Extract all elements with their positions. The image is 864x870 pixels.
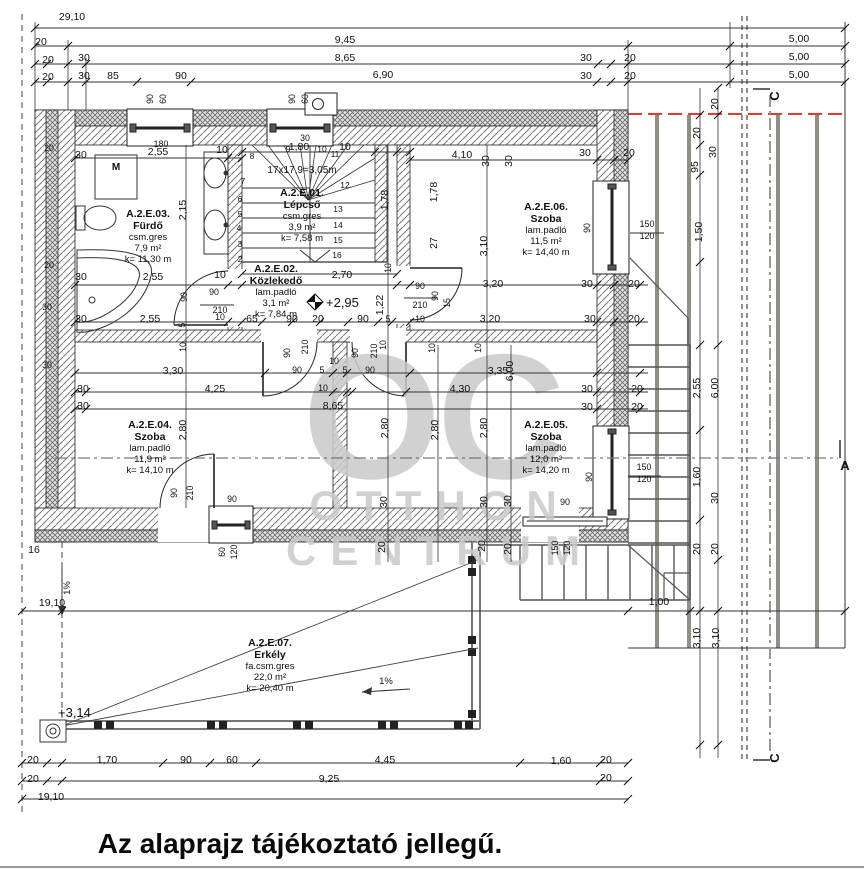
dim-label: 27 (428, 237, 440, 249)
dim-label: 90 (287, 94, 297, 104)
step-label: 15 (333, 235, 343, 245)
dim-label: 8,65 (323, 400, 344, 412)
step-label: 7 (241, 176, 246, 186)
dim-label: 5 (177, 322, 187, 327)
dim-label: 20 (623, 147, 635, 159)
step-label: 5 (238, 209, 243, 219)
level-label: +2,95 (326, 295, 359, 310)
dim-label: 30 (503, 155, 515, 167)
dim-label: 20 (44, 260, 54, 270)
dim-label: 30 (579, 147, 591, 159)
railing-post (468, 710, 476, 718)
railing-post (219, 721, 227, 729)
dim-label: 1,60 (691, 467, 703, 488)
dim-label: 30 (77, 383, 89, 395)
dim-label: 30 (580, 70, 592, 82)
dim-label: 120 (229, 545, 239, 560)
dim-label: 90 (582, 223, 592, 233)
dim-label: 90 (209, 287, 219, 297)
section-label: C (767, 753, 782, 763)
dim-label: 20 (600, 754, 612, 766)
dim-label: 30 (502, 495, 514, 507)
dim-label: 20 (312, 313, 324, 325)
dim-label: 10 (383, 263, 393, 273)
dim-label: 5 (386, 314, 391, 324)
dim-label: 3,30 (163, 365, 184, 377)
dim-label: 10 (318, 383, 328, 393)
dim-label: 5 (343, 365, 348, 375)
dim-label: 4,30 (450, 383, 471, 395)
step-label: 13 (333, 204, 343, 214)
railing-post (207, 721, 215, 729)
dim-label: 10 (473, 343, 483, 353)
railing-post (378, 721, 386, 729)
dim-label: 8,65 (335, 52, 356, 64)
section-label: A (840, 458, 850, 473)
railing-post (106, 721, 114, 729)
dim-label: 30 (581, 401, 593, 413)
dim-label: 90 (415, 281, 425, 291)
dim-label: 90 (179, 292, 189, 302)
dim-label: 10 (339, 141, 351, 153)
dim-label: 30 (75, 271, 87, 283)
dim-label: 3,20 (480, 313, 501, 325)
watermark-otthon: OTTHON (309, 482, 570, 529)
watermark-centrum: CENTRUM (286, 527, 594, 574)
dim-label: 30 (581, 278, 593, 290)
dim-label: 2,80 (177, 420, 189, 441)
wall-left-insulation (46, 110, 58, 542)
railing-post (468, 636, 476, 644)
step-label: 3 (238, 239, 243, 249)
dim-label: 2,80 (379, 418, 391, 439)
dim-label: 2,55 (691, 378, 703, 399)
dim-label: 20 (624, 70, 636, 82)
fixture-label: M (112, 162, 120, 173)
slope-arrow (362, 687, 372, 695)
dim-label: 5,00 (789, 69, 810, 81)
window-room05-right (593, 426, 629, 519)
dim-label: 6,90 (373, 69, 394, 81)
dim-label: 29,10 (59, 11, 85, 23)
step-label: 14 (333, 220, 343, 230)
railing-post (390, 721, 398, 729)
dim-label: 20 (691, 543, 703, 555)
dim-label: 20 (27, 773, 39, 785)
dim-label: 1,22 (374, 295, 386, 316)
dim-label: 1,78 (379, 190, 391, 211)
dim-label: 30 (580, 52, 592, 64)
railing-post (454, 721, 462, 729)
dim-label: 90 (292, 365, 302, 375)
dim-label: 85 (107, 70, 119, 82)
dim-label: 20 (691, 127, 703, 139)
dim-label: 90 (282, 348, 292, 358)
step-label: 11 (331, 149, 340, 159)
dim-label: 20 (600, 772, 612, 784)
dim-label: 30 (75, 149, 87, 161)
railing-post (305, 721, 313, 729)
room-label-a2e07: A.2.E.07.Erkélyfa.csm.gres22,0 m²k= 20,4… (245, 637, 294, 694)
dim-label: 10 (427, 343, 437, 353)
dim-label: 3,10 (710, 628, 722, 649)
floor-plan-svg: OC OTTHON CENTRUM 29,10209,455,0020308,6… (0, 0, 864, 870)
dim-label: 20 (42, 71, 54, 83)
dim-label: 2,55 (148, 146, 169, 158)
dim-label: 210 (185, 486, 195, 501)
dim-label: 20 (624, 52, 636, 64)
dim-label: 30 (42, 360, 52, 370)
dim-label: 4,25 (205, 383, 226, 395)
section-label: C (767, 91, 782, 101)
dim-label: 30 (707, 146, 719, 158)
dim-label: 20 (476, 540, 488, 552)
railing-post (94, 721, 102, 729)
room-label-a2e05: A.2.E.05.Szobalam.padló12,0 m²k= 14,20 m (522, 419, 569, 476)
dim-label: 30 (709, 492, 721, 504)
dim-label: 10 (216, 144, 228, 156)
dim-label: 90 (357, 313, 369, 325)
dim-label: 10 (329, 356, 339, 366)
dim-label: 10 (215, 312, 225, 322)
dim-label: 10 (415, 314, 425, 324)
floor-plan-page: OC OTTHON CENTRUM 29,10209,455,0020308,6… (0, 0, 864, 870)
room-label-a2e01: A.2.E.01.Lépcsőcsm.gres3,9 m²k= 7,58 m (280, 187, 324, 244)
stairnote-label: 17x17,9=3,05m (267, 165, 336, 176)
dim-label: 30 (42, 302, 52, 312)
dim-label: 20 (376, 541, 388, 553)
dim-label: 6,00 (709, 378, 721, 399)
dim-label: 1,50 (693, 222, 705, 243)
dim-label: 10 (178, 342, 188, 352)
dim-label: 16 (28, 544, 40, 556)
dim-label: 210 (300, 340, 310, 355)
dim-label: 30 (378, 496, 390, 508)
dim-label: 90 (169, 488, 179, 498)
dim-label: 5 (320, 365, 325, 375)
dim-label: 90 (365, 365, 375, 375)
dim-label: 20 (628, 313, 640, 325)
sink-1 (204, 158, 226, 188)
dim-label: 1,70 (97, 754, 118, 766)
slope-label: 1% (379, 676, 393, 687)
dim-label: 20 (35, 36, 47, 48)
room-label-a2e03: A.2.E.03.Fürdőcsm.gres7,9 m²k= 11,30 m (125, 208, 172, 265)
wc-bowl (84, 206, 116, 230)
step-label: 2 (238, 254, 243, 264)
dim-label: 2,55 (140, 313, 161, 325)
dim-label: 60 (300, 94, 310, 104)
dim-label: 20 (631, 383, 643, 395)
dim-label: 60 (226, 754, 238, 766)
dim-label: 20 (709, 543, 721, 555)
dim-label: 2,55 (143, 271, 164, 283)
window-room06-right (593, 181, 629, 274)
dim-label: 150 (550, 541, 560, 556)
dim-label: 10 (214, 269, 226, 281)
dim-label: 20 (44, 143, 54, 153)
dim-label: 10 (378, 340, 388, 350)
dim-label: 2,80 (478, 418, 490, 439)
step-label: 10 (317, 144, 327, 154)
dim-label: 30 (78, 70, 90, 82)
dim-label: 1,78 (428, 182, 440, 203)
dim-label: 30 (581, 383, 593, 395)
dim-label: 20 (709, 98, 721, 110)
dim-label: 30 (78, 52, 90, 64)
dim-label: 90 (175, 70, 187, 82)
dim-label: 90 (430, 291, 440, 301)
dim-label: 30 (584, 313, 596, 325)
dim-label: 30 (480, 155, 492, 167)
dim-label: 20 (42, 54, 54, 66)
dim-label: 90 (584, 472, 594, 482)
dim-label: 19,10 (38, 791, 64, 803)
room-label-a2e02: A.2.E.02.Közlekedőlam.padló3,1 m²k= 7,84… (250, 263, 303, 320)
dim-label: 60 (217, 547, 227, 557)
window-room04-bottom (209, 506, 253, 543)
dim-label: 20 (502, 543, 514, 555)
level-marker-2-95 (307, 294, 323, 310)
dim-label: 90 (350, 348, 360, 358)
dim-label: 120 (640, 231, 655, 241)
dim-label: 4,10 (452, 149, 473, 161)
dim-label: 2,70 (332, 269, 353, 281)
dim-label: 30 (300, 133, 310, 143)
dim-label: 1,00 (649, 596, 670, 608)
dim-label: 15 (442, 298, 452, 308)
step-label: 9 (286, 144, 291, 154)
dim-label: 150 (637, 462, 652, 472)
dim-label: 30 (77, 400, 89, 412)
dim-label: 150 (640, 219, 655, 229)
balcony-drain (40, 720, 66, 742)
railing-post (465, 721, 473, 729)
dim-label: 20 (27, 754, 39, 766)
dim-label: 95 (689, 161, 701, 173)
level-label: +3,14 (58, 705, 91, 720)
dim-label: 30 (478, 496, 490, 508)
dim-label: 5,00 (789, 51, 810, 63)
dim-label: 120 (562, 541, 572, 556)
dim-label: 90 (145, 94, 155, 104)
dim-label: 90 (560, 497, 570, 507)
vanity-counter (204, 152, 228, 254)
step-label: 16 (332, 250, 342, 260)
dim-label: 120 (637, 474, 652, 484)
room-label-a2e04: A.2.E.04.Szobalam.padló11,9 m²k= 14,10 m (126, 419, 173, 476)
dim-label: 20 (628, 278, 640, 290)
dim-label: 2,15 (177, 200, 189, 221)
room-label-a2e06: A.2.E.06.Szobalam.padló11,5 m²k= 14,40 m (522, 201, 569, 258)
dim-label: 60 (158, 94, 168, 104)
dim-label: 90 (180, 754, 192, 766)
dim-label: 9,25 (319, 773, 340, 785)
sink-2 (204, 210, 226, 240)
dim-label: 3,10 (691, 628, 703, 649)
step-label: 4 (237, 223, 242, 233)
dim-label: 2,80 (429, 420, 441, 441)
step-label: 8 (250, 151, 255, 161)
slope-label: 1% (62, 581, 73, 595)
dim-label: 3,10 (478, 236, 490, 257)
dim-label: 90 (227, 494, 237, 504)
dim-label: 1,60 (551, 755, 572, 767)
railing-post (293, 721, 301, 729)
step-label: 6 (238, 194, 243, 204)
dim-label: 3,20 (483, 278, 504, 290)
dim-label: 20 (631, 401, 643, 413)
dim-label: 4,45 (375, 754, 396, 766)
dim-label: 3,35 (488, 365, 509, 377)
dim-label: 30 (75, 313, 87, 325)
dim-label: 19,10 (39, 597, 65, 609)
dim-label: 210 (413, 300, 428, 310)
dim-label: 9,45 (335, 34, 356, 46)
dim-label: 5,00 (789, 33, 810, 45)
step-label: 12 (340, 180, 350, 190)
disclaimer-title: Az alaprajz tájékoztató jellegű. (98, 828, 503, 859)
